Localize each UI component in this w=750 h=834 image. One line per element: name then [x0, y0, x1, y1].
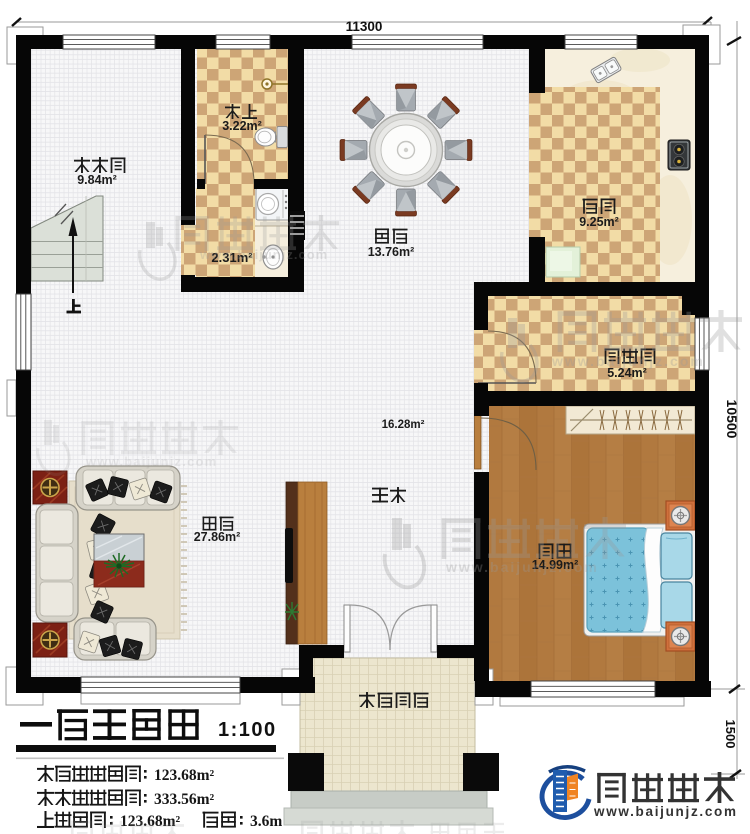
svg-text:www.baijunjz.com: www.baijunjz.com [551, 353, 705, 369]
svg-text:9.25m²: 9.25m² [579, 215, 619, 229]
svg-text:11300: 11300 [346, 19, 383, 34]
svg-text:13.76m²: 13.76m² [368, 245, 415, 259]
svg-text:333.56m²: 333.56m² [154, 791, 215, 808]
svg-text:3.22m²: 3.22m² [222, 119, 262, 133]
svg-text:www.baijunjz.com: www.baijunjz.com [593, 804, 738, 819]
svg-text:www.baijunjz.com: www.baijunjz.com [445, 559, 599, 575]
svg-text:27.86m²: 27.86m² [194, 530, 241, 544]
svg-text:www.baijunjz.com: www.baijunjz.com [85, 454, 217, 469]
svg-text:3.6m: 3.6m [250, 813, 282, 830]
svg-text:www.baijunjz.com: www.baijunjz.com [199, 247, 328, 262]
svg-text:16.28m²: 16.28m² [382, 419, 425, 431]
svg-text:1500: 1500 [723, 720, 738, 749]
svg-text:1:100: 1:100 [218, 719, 277, 741]
svg-text:123.68m²: 123.68m² [154, 767, 215, 784]
svg-text:10500: 10500 [724, 400, 740, 439]
svg-text:9.84m²: 9.84m² [77, 173, 117, 187]
